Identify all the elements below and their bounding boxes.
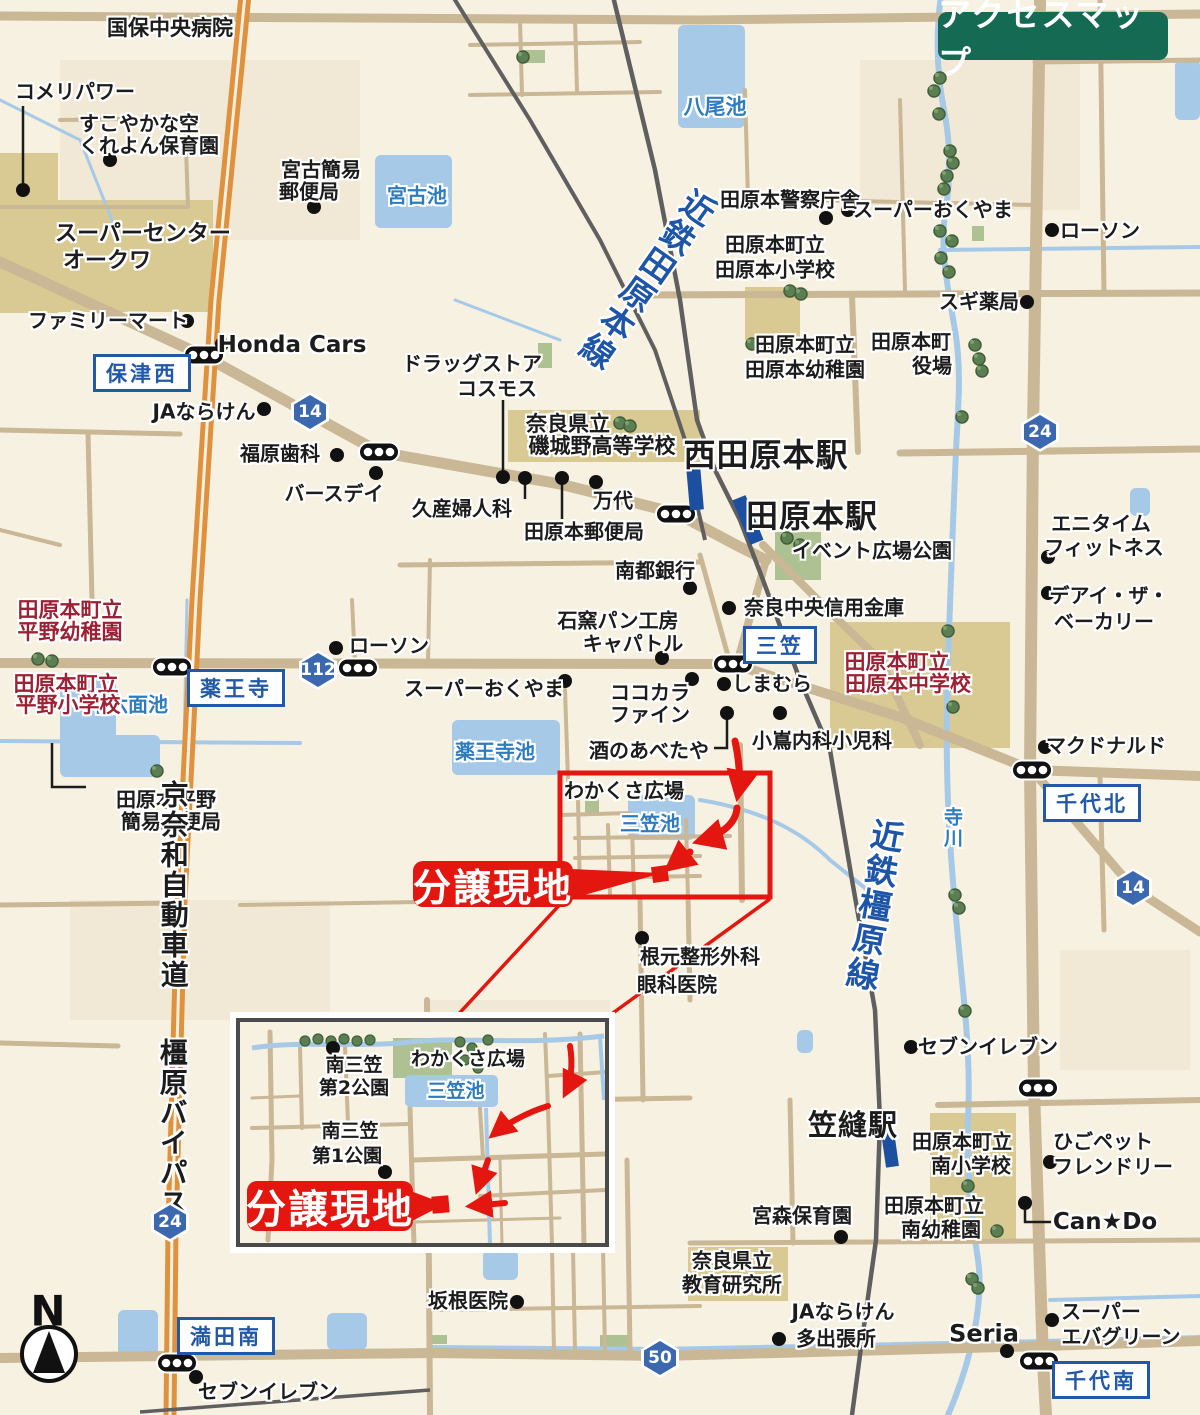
map-label: わかくさ広場 <box>411 1050 525 1070</box>
map-label: スーパーおくやま <box>853 200 1013 221</box>
map-label: JAならけん <box>153 402 256 423</box>
intersection-badge: 三笠 <box>743 626 817 664</box>
map-label: 橿原バイパス <box>157 1038 186 1218</box>
map-label: フレンドリー <box>1053 1157 1173 1178</box>
intersection-badge: 満田南 <box>177 1317 275 1355</box>
map-label: 田原本町立 <box>14 673 119 695</box>
map-label: ファイン <box>610 705 690 726</box>
map-label: Can★Do <box>1053 1210 1157 1234</box>
map-label: 南都銀行 <box>615 561 695 582</box>
map-label: 田原本町立 <box>18 599 123 621</box>
map-label: 根元整形外科 <box>640 947 760 968</box>
map-label: 福原歯科 <box>240 444 320 465</box>
map-label: 万代 <box>593 491 633 512</box>
map-label: 田原本郵便局 <box>524 522 644 543</box>
map-label: 石窯パン工房 <box>558 611 679 632</box>
map-label: 田原本幼稚園 <box>745 360 865 381</box>
map-label: コメリパワー <box>15 82 135 103</box>
map-label: 田原本町立 <box>912 1132 1012 1153</box>
map-label: ひごペット <box>1053 1132 1153 1153</box>
map-label: 郵便局 <box>279 182 339 203</box>
map-label: 田原本町立 <box>845 651 950 673</box>
site-badge-main: 分譲現地 <box>413 861 573 907</box>
station-name-label: 西田原本駅 <box>683 439 848 473</box>
map-label: キャパトル <box>583 634 684 655</box>
map-label: 南幼稚園 <box>901 1220 981 1241</box>
map-label: すこやかな空 <box>79 114 199 135</box>
map-label: 田原本警察庁舎 <box>720 190 860 211</box>
station-name-label: 笠縫駅 <box>808 1110 898 1140</box>
map-label: 田原本町 <box>871 332 951 353</box>
map-label: 多出張所 <box>796 1329 876 1350</box>
map-label: バースデイ <box>285 484 384 505</box>
route-number: 24 <box>154 1205 186 1239</box>
map-label: エニタイム <box>1051 514 1151 535</box>
map-label: 磯城野高等学校 <box>529 435 676 457</box>
map-label: ファミリーマート <box>28 311 188 332</box>
route-number: 14 <box>1117 871 1149 905</box>
map-label: 平野小学校 <box>16 694 121 716</box>
map-label: スーパー <box>1061 1302 1141 1323</box>
map-label: 久産婦人科 <box>412 499 512 520</box>
map-label: 小嶌内科小児科 <box>752 731 892 752</box>
map-label: 坂根医院 <box>428 1291 508 1312</box>
map-label: しまむら <box>732 674 812 695</box>
map-label: くれよん保育園 <box>79 136 219 157</box>
map-label: 奈良県立 <box>692 1251 772 1272</box>
map-label: 国保中央病院 <box>107 17 233 39</box>
intersection-badge: 薬王寺 <box>187 669 285 707</box>
access-map: 国保中央病院コメリパワーすこやかな空くれよん保育園宮古簡易郵便局宮古池八尾池田原… <box>0 0 1200 1415</box>
map-label: マクドナルド <box>1046 736 1166 757</box>
map-label: フィットネス <box>1044 538 1164 559</box>
map-label: ココカラ <box>610 683 690 704</box>
map-label: ローソン <box>349 636 429 657</box>
map-label: 南小学校 <box>931 1156 1011 1177</box>
map-label: ベーカリー <box>1054 612 1154 633</box>
map-label: エバグリーン <box>1062 1327 1181 1348</box>
site-badge-inset: 分譲現地 <box>247 1181 413 1231</box>
map-label: 奈良中央信用金庫 <box>744 598 904 619</box>
route-number: 112 <box>302 653 334 687</box>
map-label: わかくさ広場 <box>564 781 684 802</box>
map-label: 三笠池 <box>620 814 680 835</box>
map-label: 田原本中学校 <box>845 673 971 695</box>
map-label: 教育研究所 <box>682 1275 782 1296</box>
map-label: 京奈和自動車道 <box>158 780 187 990</box>
map-label: ドラッグストア <box>402 354 542 375</box>
map-label: オークワ <box>63 249 151 272</box>
map-label: 宮古簡易 <box>281 160 361 181</box>
map-label: スギ薬局 <box>939 292 1019 313</box>
map-label: 南三笠 <box>321 1122 378 1142</box>
map-label: イベント広場公園 <box>792 541 952 562</box>
route-number: 14 <box>294 395 326 429</box>
map-label: 三笠池 <box>427 1082 484 1102</box>
map-label: 八尾池 <box>684 96 747 118</box>
map-label: 田原本町立 <box>725 235 825 256</box>
map-label: 南三笠 <box>325 1056 382 1076</box>
map-label: 役場 <box>912 356 952 377</box>
map-label: コスモス <box>457 379 537 400</box>
map-label: 眼科医院 <box>637 975 717 996</box>
map-label: ローソン <box>1060 221 1140 242</box>
map-label: スーパーセンター <box>55 222 231 245</box>
intersection-badge: 千代南 <box>1052 1361 1150 1399</box>
map-label: JAならけん <box>792 1302 895 1323</box>
map-label: 田原本町立 <box>755 335 855 356</box>
map-label: 平野幼稚園 <box>18 621 123 643</box>
map-label: 宮森保育園 <box>752 1206 852 1227</box>
map-label: 田原本町立 <box>884 1196 984 1217</box>
north-label: N <box>30 1287 65 1336</box>
map-label: 宮古池 <box>387 186 447 207</box>
map-label: 奈良県立 <box>526 413 610 435</box>
station-name-label: 田原本駅 <box>746 500 878 534</box>
route-number: 50 <box>644 1341 676 1375</box>
map-title-badge: アクセスマップ <box>938 12 1168 60</box>
map-label: 第2公園 <box>319 1079 389 1099</box>
map-label: セブンイレブン <box>918 1037 1058 1058</box>
map-label: スーパーおくやま <box>404 679 564 700</box>
map-label: 田原本小学校 <box>715 260 835 281</box>
map-label: 薬王寺池 <box>455 742 535 763</box>
intersection-badge: 保津西 <box>93 354 191 392</box>
map-label: 酒のあべたや <box>589 741 709 762</box>
map-label: デアイ・ザ・ <box>1050 586 1169 607</box>
route-number: 24 <box>1024 415 1056 449</box>
map-label: セブンイレブン <box>198 1382 338 1403</box>
map-label: 寺川 <box>941 807 961 849</box>
map-label: Seria <box>949 1321 1019 1346</box>
map-label: 第1公園 <box>312 1147 382 1167</box>
intersection-badge: 千代北 <box>1043 784 1141 822</box>
map-label: Honda Cars <box>218 333 367 357</box>
